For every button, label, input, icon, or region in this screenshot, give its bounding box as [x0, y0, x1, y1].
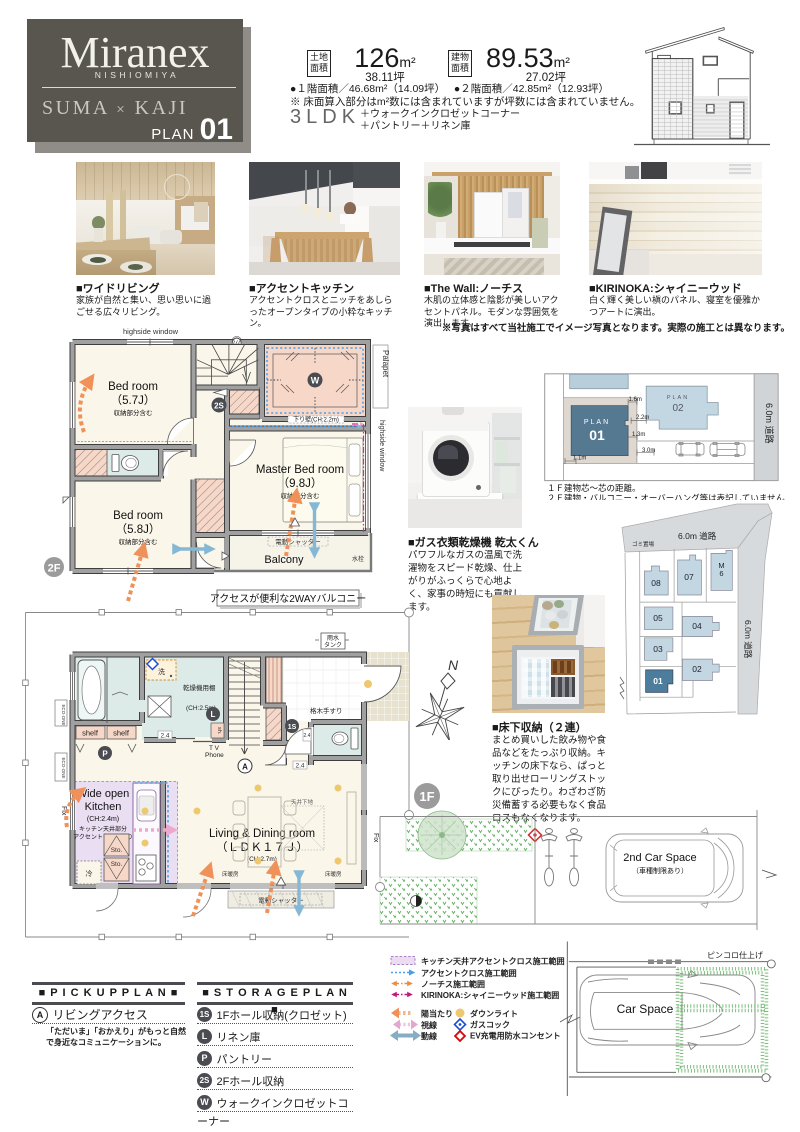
svg-text:6.0m 道路: 6.0m 道路 [678, 531, 717, 541]
svg-text:Phone: Phone [205, 752, 224, 759]
svg-text:2.4: 2.4 [295, 763, 304, 770]
svg-text:(CH:2.7m): (CH:2.7m) [247, 856, 277, 863]
svg-text:A: A [242, 762, 248, 771]
svg-text:02: 02 [672, 403, 684, 414]
svg-text:Fix: Fix [372, 833, 379, 843]
svg-text:highside window: highside window [378, 420, 385, 472]
svg-text:Living & Dining room: Living & Dining room [209, 828, 315, 840]
svg-text:Bed room: Bed room [108, 381, 158, 393]
svg-text:1S: 1S [288, 724, 297, 731]
svg-text:（9.8J）: （9.8J） [278, 477, 323, 490]
svg-text:収納部分含む: 収納部分含む [114, 408, 153, 417]
svg-text:KIRINOKA:シャイニーウッド施工範囲: KIRINOKA:シャイニーウッド施工範囲 [421, 990, 559, 1000]
svg-text:2F: 2F [48, 563, 61, 575]
svg-text:Balcony: Balcony [264, 554, 304, 566]
svg-text:床暖房: 床暖房 [222, 870, 239, 878]
svg-text:キッチン天井部分: キッチン天井部分 [79, 825, 127, 833]
svg-text:床暖房: 床暖房 [325, 870, 342, 878]
svg-text:3.0m: 3.0m [642, 448, 655, 454]
svg-text:アクセスが便利な2WAYバルコニー: アクセスが便利な2WAYバルコニー [210, 592, 367, 605]
svg-text:１Ｆ建物芯〜芯の距離。: １Ｆ建物芯〜芯の距離。 [547, 483, 641, 493]
svg-text:電動シャッター: 電動シャッター [258, 896, 304, 905]
svg-text:Kitchen: Kitchen [85, 801, 122, 813]
svg-text:PLAN: PLAN [667, 395, 689, 401]
svg-text:Palapet: Palapet [381, 350, 390, 378]
svg-text:shelf: shelf [113, 729, 130, 738]
svg-text:6.0m 道路: 6.0m 道路 [764, 403, 775, 444]
svg-text:天井下地: 天井下地 [291, 798, 314, 806]
svg-text:収納部分含む: 収納部分含む [281, 491, 320, 500]
svg-text:ECO-ONE: ECO-ONE [61, 705, 66, 726]
svg-text:07: 07 [684, 572, 694, 582]
svg-text:２Ｆ建物・バルコニー・オーバーハング等は表記していません。: ２Ｆ建物・バルコニー・オーバーハング等は表記していません。 [547, 493, 785, 500]
svg-text:ゴミ置場: ゴミ置場 [632, 540, 655, 548]
svg-text:2nd Car Space: 2nd Car Space [623, 852, 696, 864]
svg-text:陽当たり: 陽当たり [421, 1009, 453, 1019]
svg-text:冷: 冷 [86, 869, 93, 878]
svg-text:2.4: 2.4 [160, 733, 169, 740]
svg-text:下り壁(CH:2.2m): 下り壁(CH:2.2m) [293, 416, 339, 424]
svg-text:洗: 洗 [158, 667, 165, 676]
svg-text:ダウンライト: ダウンライト [470, 1009, 518, 1019]
svg-text:P: P [102, 749, 108, 758]
svg-text:（5.7J）: （5.7J） [111, 394, 156, 407]
svg-text:shelf: shelf [82, 729, 99, 738]
svg-text:Sto.: Sto. [111, 847, 123, 854]
svg-text:(CH:2.4m): (CH:2.4m) [87, 816, 119, 823]
svg-text:6: 6 [719, 569, 723, 578]
svg-text:01: 01 [589, 427, 605, 443]
svg-text:アクセントクロス施工範囲: アクセントクロス施工範囲 [421, 968, 517, 978]
svg-text:（5.8J）: （5.8J） [116, 523, 161, 536]
svg-text:視線: 視線 [420, 1020, 437, 1030]
svg-text:ノーチス施工範囲: ノーチス施工範囲 [421, 979, 485, 989]
svg-text:2.2m: 2.2m [636, 415, 649, 421]
svg-text:Wide open: Wide open [77, 788, 130, 800]
svg-text:08: 08 [651, 578, 661, 588]
svg-text:収納部分含む: 収納部分含む [119, 537, 158, 546]
svg-text:キッチン天井アクセントクロス施工範囲: キッチン天井アクセントクロス施工範囲 [421, 956, 565, 966]
svg-text:highside window: highside window [123, 327, 179, 336]
svg-text:2S: 2S [214, 401, 224, 410]
svg-text:1F: 1F [419, 789, 434, 804]
svg-text:動線: 動線 [421, 1031, 437, 1041]
svg-text:乾燥機用棚: 乾燥機用棚 [183, 683, 216, 692]
svg-text:1.1m: 1.1m [573, 456, 586, 462]
svg-text:W: W [311, 375, 320, 385]
svg-text:sh.: sh. [216, 727, 222, 735]
svg-text:PLAN: PLAN [584, 419, 610, 426]
svg-text:格木手すり: 格木手すり [310, 706, 343, 715]
svg-text:2.4: 2.4 [304, 733, 311, 739]
svg-text:Sto.: Sto. [111, 861, 123, 868]
svg-text:水栓: 水栓 [352, 555, 364, 563]
svg-text:雨水: 雨水 [327, 634, 339, 642]
svg-text:ECO-ONE: ECO-ONE [61, 758, 66, 779]
svg-text:ピンコロ仕上げ: ピンコロ仕上げ [707, 950, 763, 960]
svg-text:L: L [211, 710, 216, 719]
svg-text:タンク: タンク [324, 641, 342, 649]
svg-text:ガスコック: ガスコック [470, 1020, 510, 1030]
svg-text:Bed room: Bed room [113, 510, 163, 522]
svg-text:Master Bed room: Master Bed room [256, 464, 344, 476]
svg-text:（車種制限あり）: （車種制限あり） [632, 866, 688, 875]
svg-text:T V: T V [209, 745, 220, 752]
svg-text:Car Space: Car Space [617, 1002, 674, 1016]
